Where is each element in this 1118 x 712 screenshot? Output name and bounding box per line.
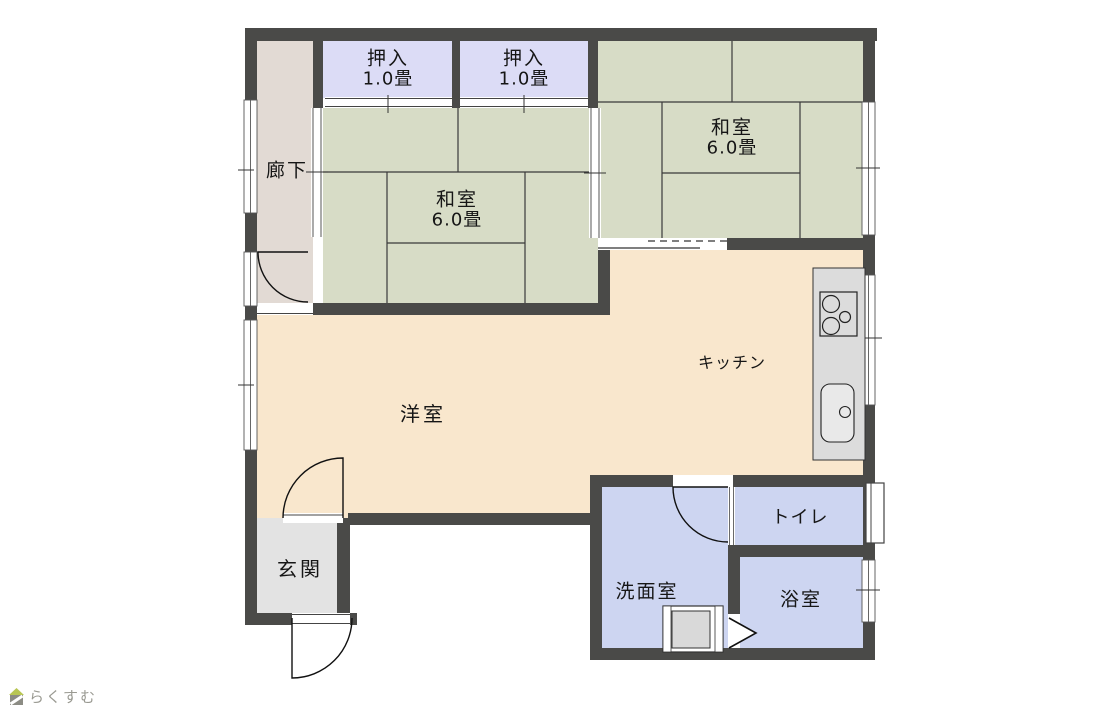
room-label-western-room: 洋室 — [400, 403, 446, 425]
window-left-small — [244, 252, 257, 306]
logo: らくすむ — [8, 686, 97, 707]
room-label-washroom: 洗面室 — [615, 581, 678, 602]
washitsu-kitchen-opening — [598, 238, 727, 250]
window-toilet-right — [866, 483, 884, 543]
hallway-threshold — [257, 303, 313, 315]
washroom-door-opening — [673, 475, 733, 487]
window-hallway-left — [238, 100, 257, 213]
washing-machine-icon — [663, 606, 723, 652]
room-label-kitchen: キッチン — [698, 354, 766, 372]
room-label-toilet: トイレ — [772, 508, 829, 528]
entrance-front-door-arc — [292, 618, 352, 678]
house-icon — [8, 687, 25, 706]
room-label-hallway: 廊下 — [266, 160, 308, 181]
floorplan-drawing — [0, 0, 1118, 712]
toilet-door-opening — [728, 487, 735, 545]
entrance-bottom-opening — [292, 613, 350, 625]
logo-text: らくすむ — [29, 686, 97, 707]
kitchen-counter — [813, 268, 865, 460]
room-label-washitsu-right: 和室 6.0畳 — [707, 117, 758, 158]
floorplan-canvas: 廊下 押入 1.0畳 押入 1.0畳 和室 6.0畳 和室 6.0畳 洋室 キッ… — [0, 0, 1118, 712]
room-label-entrance: 玄関 — [277, 558, 323, 580]
window-western-room-left — [238, 320, 257, 450]
sink-icon — [821, 384, 854, 442]
room-label-closet-1: 押入 1.0畳 — [363, 48, 414, 89]
room-label-washitsu-left: 和室 6.0畳 — [432, 189, 483, 230]
room-label-bathroom: 浴室 — [780, 589, 822, 610]
entrance-top-opening — [283, 513, 343, 523]
room-label-closet-2: 押入 1.0畳 — [499, 48, 550, 89]
